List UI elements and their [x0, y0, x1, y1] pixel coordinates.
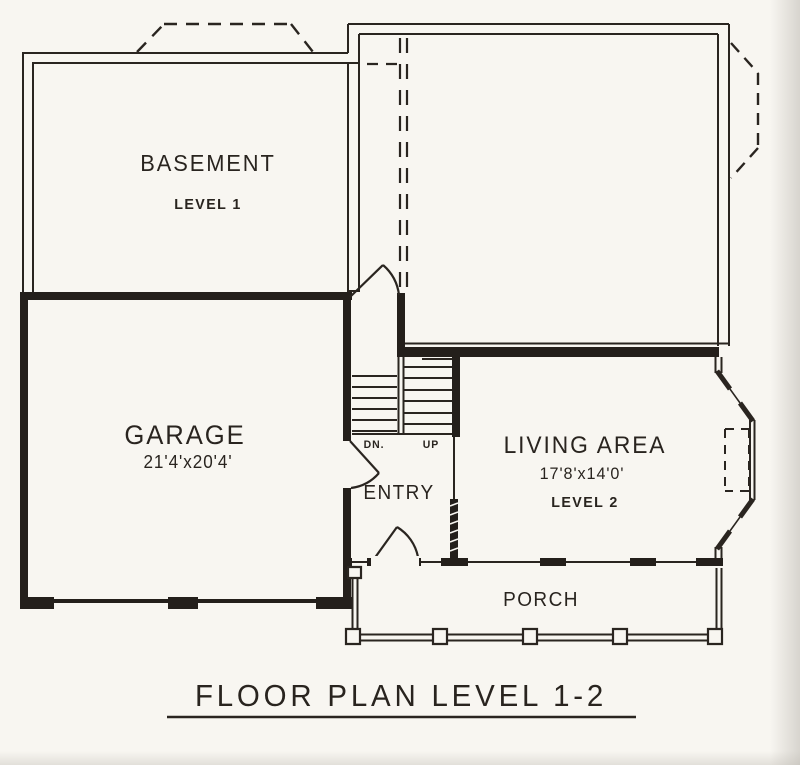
- scan-edge-shading-right: [770, 0, 800, 765]
- stairs-down-label: DN.: [364, 439, 385, 451]
- garage-label: GARAGE: [124, 420, 245, 451]
- floor-plan-drawing: [0, 0, 800, 765]
- entry-label: ENTRY: [363, 482, 434, 505]
- basement-level-label: LEVEL 1: [174, 196, 242, 213]
- floor-plan-page: BASEMENT LEVEL 1 GARAGE 21'4'x20'4' LIVI…: [0, 0, 800, 765]
- garage-dimensions: 21'4'x20'4': [143, 452, 232, 473]
- basement-label: BASEMENT: [140, 150, 275, 177]
- porch-label: PORCH: [503, 589, 579, 612]
- upper-room-walls: [348, 24, 729, 346]
- stair-head-wall: [397, 293, 405, 350]
- upper-room-bay-dashed: [731, 43, 758, 178]
- front-door-arc: [374, 527, 418, 559]
- basement-door-arc: [350, 265, 399, 297]
- living-area-label: LIVING AREA: [504, 432, 667, 460]
- basement-bay-dashed: [137, 24, 313, 52]
- front-wall: [351, 556, 723, 568]
- stairs-up-label: UP: [423, 439, 439, 451]
- scan-edge-shading-bottom: [0, 751, 800, 765]
- bay-window: [717, 371, 755, 549]
- staircase: [352, 348, 460, 437]
- plan-title: FLOOR PLAN LEVEL 1-2: [195, 678, 607, 714]
- level2-outline-dashed: [367, 38, 407, 290]
- living-area-level-label: LEVEL 2: [551, 494, 619, 511]
- living-area-dimensions: 17'8'x14'0': [540, 464, 625, 484]
